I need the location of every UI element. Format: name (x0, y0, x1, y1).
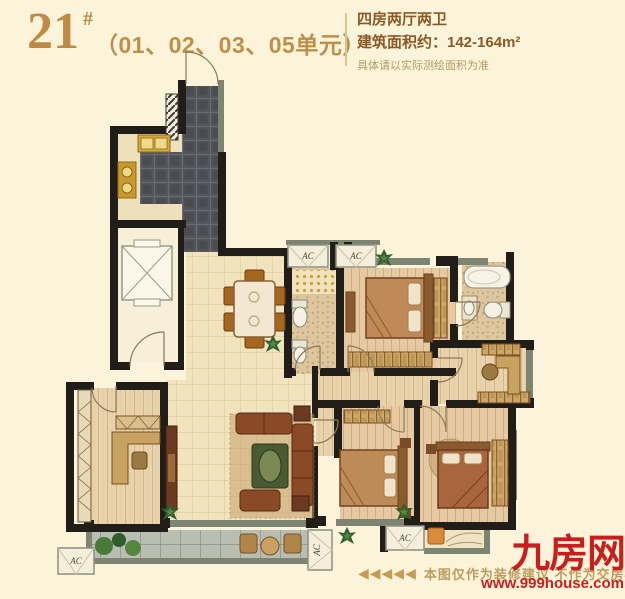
sofa (292, 424, 313, 506)
pillow (408, 283, 421, 305)
balcony-chair (240, 534, 257, 553)
ac-unit: AC (288, 245, 328, 267)
brand-logo: 九房网 (465, 535, 625, 574)
headboard (398, 446, 407, 510)
cushion (428, 528, 444, 544)
ac-label: AC (312, 543, 322, 556)
arrow-icons: ◀◀◀◀◀ (358, 565, 417, 581)
wardrobe (492, 440, 508, 506)
toilet (293, 307, 307, 327)
ac-unit: AC (386, 526, 424, 550)
duct-shaft (166, 94, 178, 140)
elevator (122, 240, 172, 306)
foyer-corridor-floor (182, 86, 222, 252)
balcony-rail (86, 558, 312, 564)
window (218, 80, 224, 156)
pillow (464, 453, 482, 464)
armchair (240, 490, 280, 511)
ac-unit: AC (308, 530, 332, 570)
ac-unit: AC (58, 548, 94, 574)
plant (95, 537, 113, 555)
bookshelf (482, 344, 520, 355)
cabinet (116, 416, 160, 429)
ac-label: AC (349, 251, 362, 261)
chair (482, 364, 498, 380)
bathtub (464, 266, 510, 288)
ac-label: AC (69, 556, 82, 566)
elevator-door (134, 240, 160, 247)
ac-unit: AC (336, 245, 376, 267)
balcony-chair (284, 534, 301, 553)
ac-label: AC (398, 533, 411, 543)
dining-table (234, 281, 275, 337)
dresser (434, 278, 447, 338)
closet (78, 390, 91, 522)
plant (125, 540, 141, 556)
balcony-table (261, 537, 279, 555)
bench (346, 292, 355, 332)
floorplan-drawing: AC AC AC AC AC (0, 0, 625, 599)
ac-label: AC (301, 251, 314, 261)
end-table (294, 406, 310, 421)
plant (112, 533, 126, 547)
end-table (292, 496, 309, 511)
nightstand (400, 438, 411, 448)
bedroom2-set (426, 439, 508, 508)
elevator-door (134, 299, 160, 306)
brand-site-url: www.999house.com (465, 575, 625, 592)
pillow (442, 453, 460, 464)
pillow (384, 478, 396, 497)
toilet (484, 302, 502, 318)
chair (132, 452, 147, 469)
pillow (408, 310, 421, 332)
entry-door (186, 52, 218, 84)
kitchen-tiles (140, 152, 182, 204)
pillow (384, 455, 396, 474)
floorplan-page: 21 # （01、02、03、05单元） 四房两厅两卫 建筑面积约：142-16… (0, 0, 625, 599)
window (336, 519, 406, 526)
sliding-door (168, 520, 314, 527)
brand-block: 九房网 www.999house.com (465, 535, 625, 592)
nightstand (426, 444, 436, 454)
wardrobe (348, 352, 432, 367)
bathroom1-shower (290, 270, 336, 294)
headboard (424, 274, 433, 342)
bookshelf (478, 392, 530, 403)
sink (464, 301, 474, 315)
